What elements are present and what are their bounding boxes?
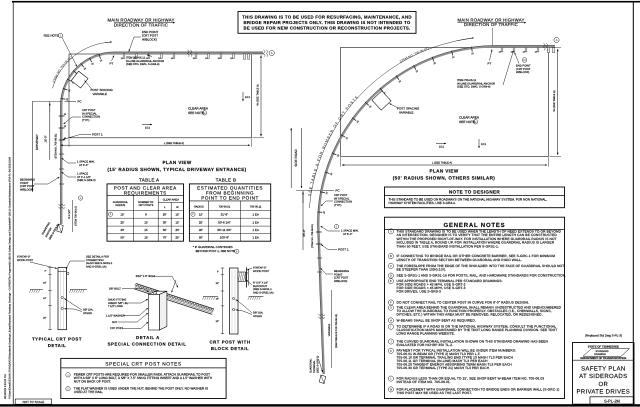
svg-text:24": 24" <box>216 282 220 285</box>
svg-text:SEE NOTE: SEE NOTE <box>459 120 475 124</box>
svg-text:E: E <box>390 279 392 283</box>
svg-text:PRIVATE DRIVES: PRIVATE DRIVES <box>576 389 630 396</box>
svg-text:10: 10 <box>144 220 148 224</box>
svg-text:RADIUS: RADIUS <box>194 205 204 208</box>
svg-text:VARIABLE: VARIABLE <box>93 92 107 96</box>
svg-text:7": 7" <box>217 271 219 274</box>
svg-text:18": 18" <box>43 282 47 285</box>
svg-text:(SEE S-GR9-3): (SEE S-GR9-3) <box>77 179 96 182</box>
svg-text:15': 15' <box>120 212 124 216</box>
svg-text:10:1: 10:1 <box>481 143 487 146</box>
svg-text:HOLES: HOLES <box>83 312 92 315</box>
svg-text:1 EA: 1 EA <box>252 228 259 232</box>
svg-text:VARIABLE: VARIABLE <box>328 323 331 336</box>
svg-text:AND S-GR31-1A): AND S-GR31-1A) <box>86 265 107 268</box>
svg-text:7": 7" <box>44 270 46 273</box>
svg-text:H: H <box>390 318 392 322</box>
svg-text:CLEAR AREA: CLEAR AREA <box>163 199 180 202</box>
svg-text:9/19/2023 2:49:25 PM: 9/19/2023 2:49:25 PM <box>4 374 7 399</box>
svg-text:SEE NOTE: SEE NOTE <box>44 34 59 38</box>
svg-text:TABLE A: TABLE A <box>139 177 160 182</box>
svg-text:THIS DRAWING IS TO BE USED FOR: THIS DRAWING IS TO BE USED FOR RESURFACI… <box>242 15 411 20</box>
svg-text:WOOD POST: WOOD POST <box>253 270 270 273</box>
svg-text:SPECIAL CRT POST NOTES: SPECIAL CRT POST NOTES <box>105 362 181 368</box>
svg-text:5/8" BOLT: 5/8" BOLT <box>109 288 121 291</box>
svg-text:LENGTH OF TRANSITION SECTION B: LENGTH OF TRANSITION SECTION BETWEEN GUA… <box>397 258 522 262</box>
svg-text:1 1/2" WASHER: 1 1/2" WASHER <box>106 315 125 318</box>
svg-text:SAFETY PLAN: SAFETY PLAN <box>581 365 625 372</box>
svg-text:10:1: 10:1 <box>439 146 445 149</box>
svg-text:BE STEEPER THAN 10(H):1(V).: BE STEEPER THAN 10(H):1(V). <box>397 268 447 272</box>
svg-text:CRT POSTS: CRT POSTS <box>139 204 154 207</box>
svg-text:K: K <box>390 349 392 353</box>
svg-text:STATE OF TENNESSEE: STATE OF TENNESSEE <box>588 344 619 348</box>
svg-text:G: G <box>475 121 477 124</box>
svg-text:18: 18 <box>144 236 148 240</box>
svg-text:L (SEE TABLE A): L (SEE TABLE A) <box>164 142 184 145</box>
svg-text:(50' RADIUS SHOWN, OTHERS SIMI: (50' RADIUS SHOWN, OTHERS SIMILAR) <box>393 175 496 180</box>
svg-text:(ITEM 705-06.10): (ITEM 705-06.10) <box>75 206 78 226</box>
svg-text:C: C <box>390 264 392 268</box>
svg-text:PLAN VIEW: PLAN VIEW <box>429 169 458 174</box>
svg-text:15': 15' <box>175 220 179 224</box>
svg-text:F: F <box>390 300 392 304</box>
svg-text:16": 16" <box>43 297 47 300</box>
svg-text:OR: OR <box>598 381 608 388</box>
svg-text:100'-8": 100'-8" <box>220 236 229 240</box>
svg-text:CRT POST WITH: CRT POST WITH <box>209 340 250 345</box>
svg-text:THAN 50 FEET, USE STANDARD INS: THAN 50 FEET, USE STANDARD INSTALLATION … <box>397 245 499 249</box>
svg-text:A: A <box>390 229 392 233</box>
svg-text:705-06.30 GR TERMINAL (TYPE 2: 705-06.30 GR TERMINAL (TYPE 21) MASH TL3… <box>397 366 490 370</box>
svg-text:NOT TO SCALE: NOT TO SCALE <box>23 400 45 404</box>
svg-text:DO NOT CONNECT RAIL TO CENTER: DO NOT CONNECT RAIL TO CENTER POST IN CU… <box>397 300 530 304</box>
svg-text:(ITEM NO. 705-06.01): (ITEM NO. 705-06.01) <box>311 224 314 248</box>
svg-text:G: G <box>204 112 206 115</box>
svg-text:55'-0": 55'-0" <box>302 229 306 236</box>
svg-text:50': 50' <box>199 236 203 240</box>
svg-text:PT: PT <box>488 62 492 66</box>
svg-text:W/BLOCK): W/BLOCK) <box>516 71 529 74</box>
svg-text:10:1: 10:1 <box>245 96 251 99</box>
svg-text:(SEE STD. DWG. S-GR4-4): (SEE STD. DWG. S-GR4-4) <box>126 63 160 66</box>
svg-text:BLOCK DETAIL: BLOCK DETAIL <box>211 346 249 351</box>
svg-text:(ITEM NO. 705-06.01): (ITEM NO. 705-06.01) <box>55 133 58 158</box>
svg-text:SPECIAL CONNECTION DETAIL: SPECIAL CONNECTION DETAIL <box>108 342 187 347</box>
svg-text:25': 25' <box>199 220 203 224</box>
svg-text:M: M <box>523 59 525 62</box>
svg-text:GENERAL NOTES: GENERAL NOTES <box>444 222 506 229</box>
svg-text:(TYP.): (TYP.) <box>334 204 342 207</box>
svg-text:7 1/2" LONG: 7 1/2" LONG <box>108 305 123 308</box>
svg-text:20': 20' <box>175 228 179 232</box>
svg-text:(TYP.): (TYP.) <box>82 119 90 122</box>
svg-text:30': 30' <box>163 220 167 224</box>
svg-text:9'-4 1/2": 9'-4 1/2" <box>68 209 71 219</box>
svg-text:POST 1: POST 1 <box>338 248 349 252</box>
svg-text:REQUIREMENTS: REQUIREMENTS <box>124 191 167 196</box>
svg-text:W/BLOCK): W/BLOCK) <box>142 37 157 41</box>
svg-text:W/BLOCK): W/BLOCK) <box>20 188 33 191</box>
svg-text:EVALUATED FOR NCHRP 350 TL-2.: EVALUATED FOR NCHRP 350 TL-2. <box>397 343 454 347</box>
svg-text:PT: PT <box>110 62 114 66</box>
svg-text:WOOD POST: WOOD POST <box>17 259 34 262</box>
svg-text:50': 50' <box>163 228 167 232</box>
svg-text:DIRECTION OF TRAFFIC: DIRECTION OF TRAFFIC <box>464 22 518 27</box>
svg-text:16'-0": 16'-0" <box>43 135 47 142</box>
svg-text:B: B <box>390 254 392 258</box>
svg-text:(15' RADIUS SHOWN, TYPICAL DRI: (15' RADIUS SHOWN, TYPICAL DRIVEWAY ENTR… <box>107 167 246 172</box>
svg-text:31'-6": 31'-6" <box>221 212 229 216</box>
svg-text:A: A <box>556 38 558 42</box>
svg-text:80'-11 3/4": 80'-11 3/4" <box>217 228 231 232</box>
svg-text:1 EA: 1 EA <box>252 220 259 224</box>
svg-text:15: 15 <box>144 228 148 232</box>
svg-text:HIGHWAY SYSTEM FACILITIES, USE: HIGHWAY SYSTEM FACILITIES, USE S-GR4-4. <box>389 201 456 205</box>
svg-text:705-06.01: 705-06.01 <box>219 205 231 208</box>
svg-text:LONG RANGE PLANNING WEBSITE.: LONG RANGE PLANNING WEBSITE. <box>397 332 455 336</box>
svg-text:CRT POST: CRT POST <box>110 327 123 330</box>
svg-text:1 EA: 1 EA <box>252 212 259 216</box>
svg-text:POST 1: POST 1 <box>92 133 103 137</box>
svg-text:L (SEE TABLE A): L (SEE TABLE A) <box>432 162 452 165</box>
svg-text:(SEE STD. DWG. S-GR4-4): (SEE STD. DWG. S-GR4-4) <box>457 86 491 89</box>
svg-text:20": 20" <box>43 317 47 320</box>
svg-text:5/16" X 8" BOLT: 5/16" X 8" BOLT <box>136 275 156 278</box>
svg-text:PLAN VIEW: PLAN VIEW <box>162 160 191 165</box>
svg-text:W (SEE TABLE A): W (SEE TABLE A) <box>553 90 556 111</box>
svg-text:DRAWING: DRAWING <box>594 353 606 356</box>
svg-text:16": 16" <box>216 298 220 301</box>
svg-text:D: D <box>390 274 392 278</box>
svg-text:RADIUS: RADIUS <box>115 204 125 207</box>
svg-text:FOR DRIVES, USE S-GR9-3: FOR DRIVES, USE S-GR9-3 <box>397 289 441 293</box>
svg-text:TYPICAL CRT POST: TYPICAL CRT POST <box>32 337 82 342</box>
svg-text:VARIABLE: VARIABLE <box>399 110 413 114</box>
svg-text:1 EA: 1 EA <box>252 236 259 240</box>
svg-text:HOLES: HOLES <box>253 315 262 318</box>
svg-text:INSTEAD OF ITEM NO. 705-06.01.: INSTEAD OF ITEM NO. 705-06.01. <box>397 380 451 384</box>
svg-text:15': 15' <box>175 212 179 216</box>
svg-text:DETAIL: DETAIL <box>48 343 67 348</box>
svg-text:AT 6'-3": AT 6'-3" <box>343 233 352 236</box>
svg-text:15': 15' <box>199 212 203 216</box>
svg-text:20": 20" <box>216 320 220 323</box>
svg-text:SIDE ROAD: SIDE ROAD <box>294 149 298 167</box>
svg-text:DEPARTMENT OF TRANSPORTATION: DEPARTMENT OF TRANSPORTATION <box>580 357 626 360</box>
svg-text:25': 25' <box>120 220 124 224</box>
svg-text:10:1: 10:1 <box>145 127 151 130</box>
svg-text:P:\StandDraw\DESIGN STANDARDS\: P:\StandDraw\DESIGN STANDARDS\Standards … <box>8 156 11 399</box>
svg-text:DITCHES, ETC.) WITHIN THIS ARE: DITCHES, ETC.) WITHIN THIS AREA MUST BE … <box>397 313 543 317</box>
svg-text:S-PL-2M: S-PL-2M <box>604 398 620 403</box>
svg-text:POINT TO END POINT: POINT TO END POINT <box>201 196 259 201</box>
svg-text:NUT ON BACK OF POST.: NUT ON BACK OF POST. <box>74 380 111 384</box>
svg-text:USED AT THE RAIL.: USED AT THE RAIL. <box>74 390 104 394</box>
svg-text:AT SIDEROADS: AT SIDEROADS <box>579 373 627 380</box>
svg-text:BEYOND POST 1, SEE NOTE: BEYOND POST 1, SEE NOTE <box>196 249 236 253</box>
svg-text:DIRECTION OF TRAFFIC: DIRECTION OF TRAFFIC <box>114 22 168 27</box>
svg-text:W (SEE TABLE A): W (SEE TABLE A) <box>256 84 259 105</box>
svg-text:A: A <box>271 51 273 55</box>
svg-text:25': 25' <box>175 236 179 240</box>
svg-text:(Replaced Std Dwg S-PL-3): (Replaced Std Dwg S-PL-3) <box>585 334 622 338</box>
svg-text:SEE NOTE: SEE NOTE <box>188 111 204 115</box>
svg-text:40': 40' <box>120 228 124 232</box>
svg-text:NUT: NUT <box>112 321 118 324</box>
svg-text:AND S-GR31-1A): AND S-GR31-1A) <box>253 291 274 294</box>
svg-text:W/BLOCK): W/BLOCK) <box>334 280 347 283</box>
svg-text:BE USED FOR NEW CONSTRUCTION O: BE USED FOR NEW CONSTRUCTION OR RECONSTR… <box>243 26 410 31</box>
svg-text:50'-6 1/4": 50'-6 1/4" <box>218 220 231 224</box>
svg-text:TABLE B: TABLE B <box>216 177 237 182</box>
svg-text:DETAIL A: DETAIL A <box>136 335 160 340</box>
svg-text:40': 40' <box>199 228 203 232</box>
svg-text:SEE S-GRS1-1 AND S-GRS1-1A FOR: SEE S-GRS1-1 AND S-GRS1-1A FOR POSTS, RA… <box>397 274 567 278</box>
svg-text:AT 6'-3": AT 6'-3" <box>79 164 88 167</box>
svg-text:20': 20' <box>163 212 167 216</box>
svg-text:W-BEAMS SHALL BE SHOP BENT AS: W-BEAMS SHALL BE SHOP BENT AS REQUIRED. <box>397 318 476 322</box>
svg-text:THIS POST MAY BE USED AS THE L: THIS POST MAY BE USED AS THE LAST POST. <box>397 391 472 395</box>
svg-text:50': 50' <box>120 236 124 240</box>
svg-text:(SEE TABLE B FOR 705-06.10): (SEE TABLE B FOR 705-06.10) <box>335 314 338 348</box>
svg-text:NOTE TO DESIGNER: NOTE TO DESIGNER <box>449 190 501 195</box>
svg-text:DRIVEWAY: DRIVEWAY <box>35 134 39 150</box>
svg-text:(SEE S-GRT-2): (SEE S-GRT-2) <box>317 356 320 373</box>
svg-text:BRIDGE REPAIR PROJECTS ONLY.: BRIDGE REPAIR PROJECTS ONLY. THIS DRAWIN… <box>244 20 411 25</box>
svg-text:70': 70' <box>163 236 167 240</box>
svg-text:705-06.11: 705-06.11 <box>250 205 262 208</box>
